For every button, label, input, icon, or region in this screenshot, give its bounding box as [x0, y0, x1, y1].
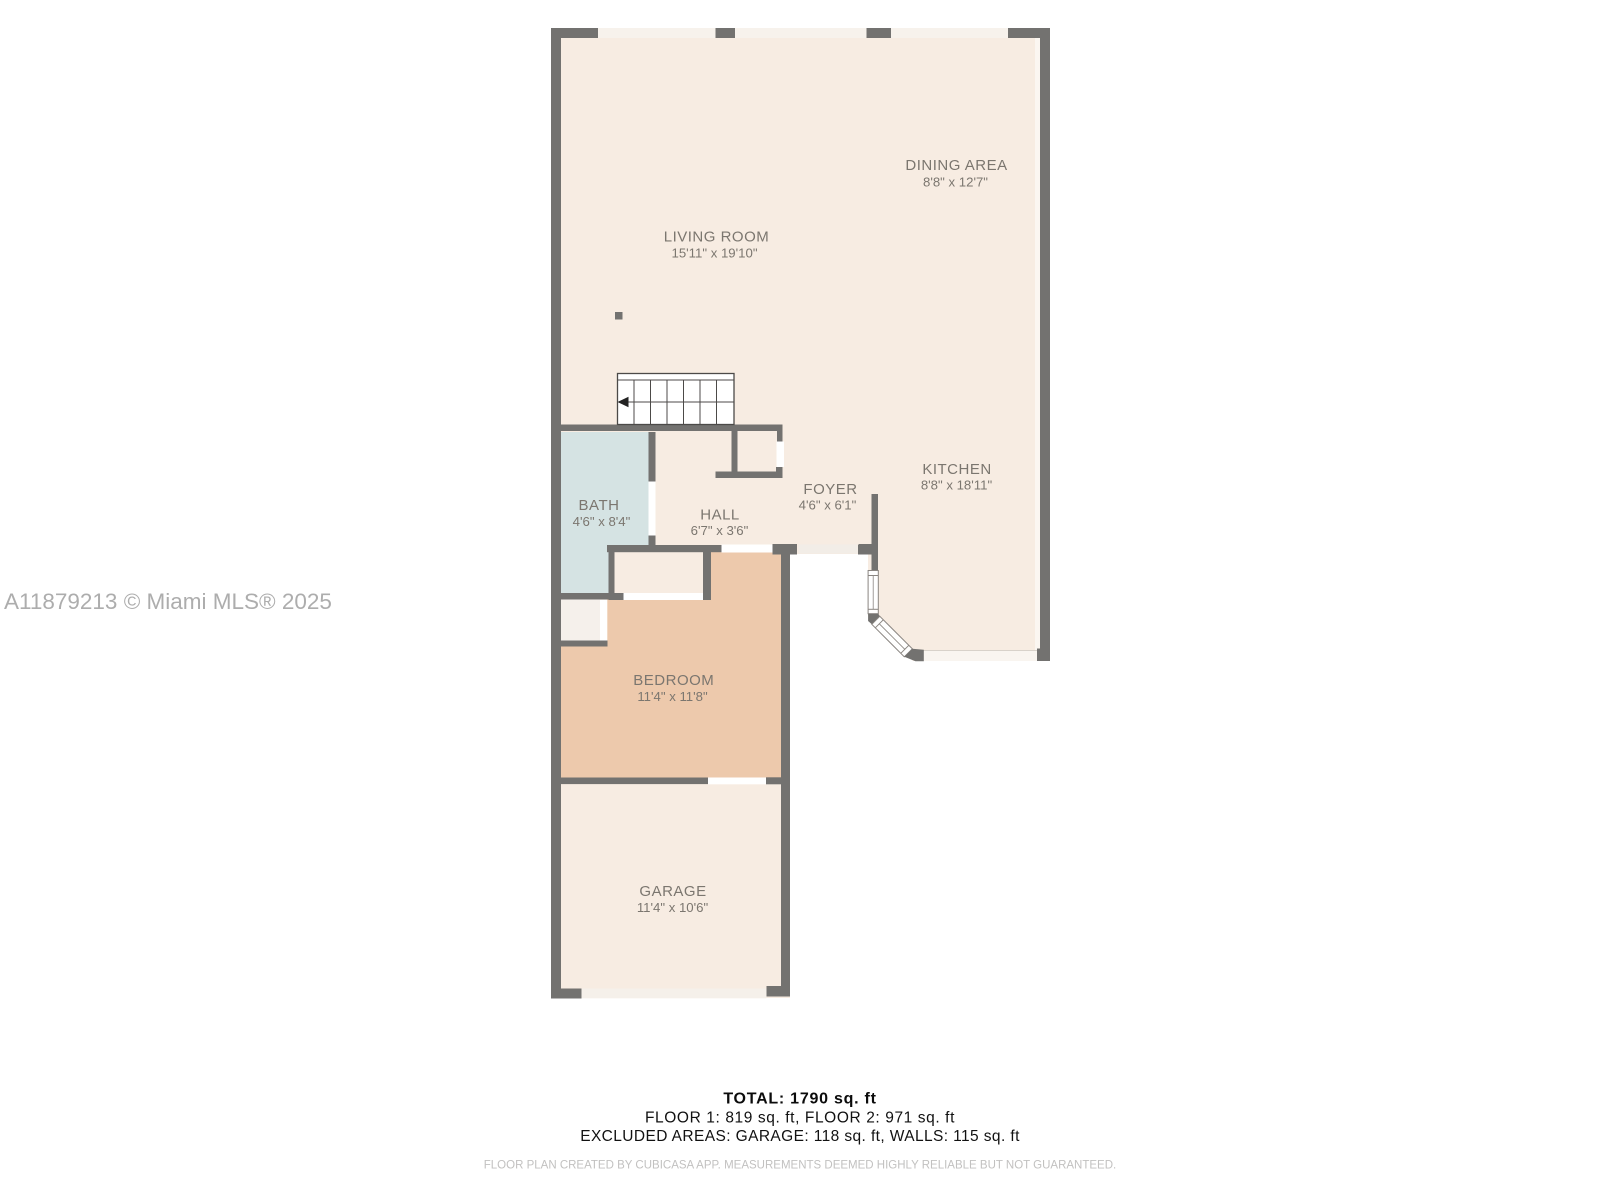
svg-text:GARAGE: GARAGE: [639, 883, 706, 900]
svg-text:DINING AREA: DINING AREA: [905, 157, 1007, 174]
svg-text:6'7" x 3'6": 6'7" x 3'6": [691, 523, 749, 538]
svg-text:8'8" x 12'7": 8'8" x 12'7": [923, 175, 988, 190]
svg-text:11'4" x 10'6": 11'4" x 10'6": [637, 900, 709, 915]
svg-text:4'6" x 8'4": 4'6" x 8'4": [573, 514, 631, 529]
svg-text:11'4" x 11'8": 11'4" x 11'8": [637, 689, 708, 704]
svg-text:KITCHEN: KITCHEN: [922, 461, 991, 478]
svg-text:A11879213 © Miami MLS® 2025: A11879213 © Miami MLS® 2025: [4, 589, 332, 614]
svg-text:FLOOR PLAN CREATED BY CUBICASA: FLOOR PLAN CREATED BY CUBICASA APP. MEAS…: [484, 1160, 1116, 1172]
svg-text:8'8" x 18'11": 8'8" x 18'11": [921, 478, 993, 493]
svg-text:FOYER: FOYER: [803, 481, 857, 498]
svg-text:15'11" x 19'10": 15'11" x 19'10": [671, 246, 757, 261]
svg-text:TOTAL: 1790 sq. ft: TOTAL: 1790 sq. ft: [723, 1091, 876, 1108]
svg-text:BEDROOM: BEDROOM: [633, 672, 714, 689]
svg-text:4'6" x 6'1": 4'6" x 6'1": [799, 498, 857, 513]
svg-text:FLOOR 1: 819 sq. ft, FLOOR 2:: FLOOR 1: 819 sq. ft, FLOOR 2: 971 sq. ft: [645, 1110, 955, 1127]
svg-text:EXCLUDED AREAS: GARAGE: 118 sq: EXCLUDED AREAS: GARAGE: 118 sq. ft, WALL…: [580, 1128, 1020, 1145]
svg-text:LIVING ROOM: LIVING ROOM: [664, 229, 770, 246]
svg-text:BATH: BATH: [579, 497, 620, 514]
svg-text:HALL: HALL: [700, 507, 740, 524]
